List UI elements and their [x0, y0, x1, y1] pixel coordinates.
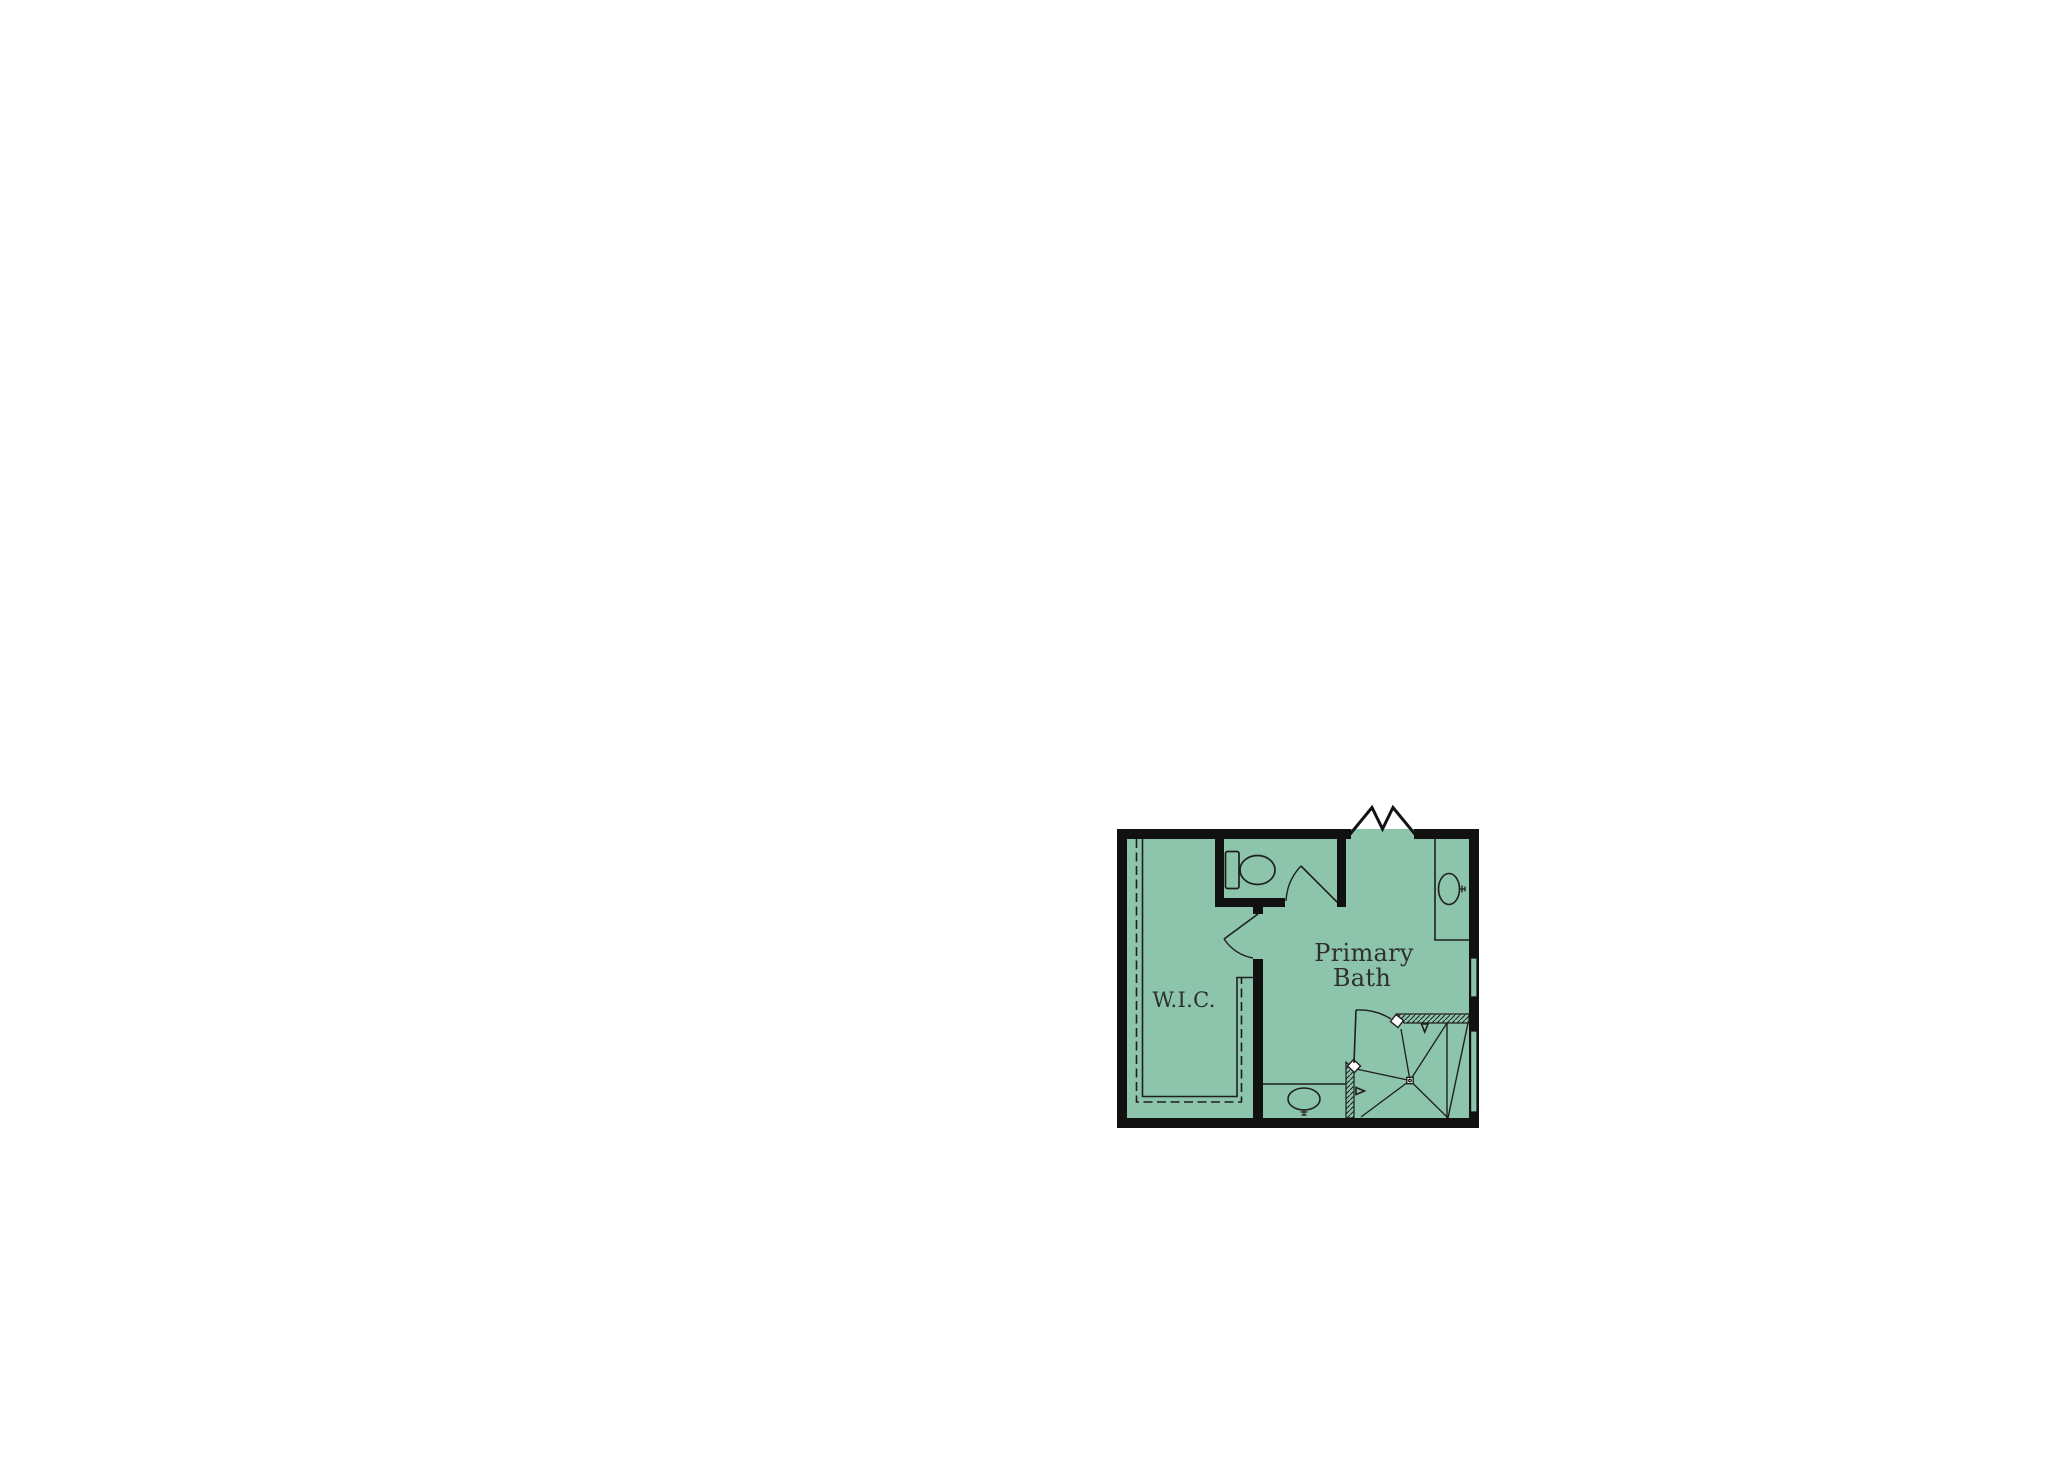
toilet-room-wall-right [1337, 839, 1346, 907]
wic-divider-stub [1253, 906, 1263, 914]
floor-plan: Primary Bath W.I.C. [1100, 795, 1490, 1140]
wall-bottom [1117, 1118, 1479, 1128]
primary-bath-label-line1: Primary [1314, 939, 1414, 967]
wic-divider-wall [1253, 959, 1263, 1118]
shower-wall-top [1397, 1014, 1469, 1023]
sink-icon [1288, 1088, 1320, 1110]
window-lower [1471, 1031, 1477, 1112]
page-canvas: Primary Bath W.I.C. [0, 0, 2069, 1483]
primary-bath-label-line2: Bath [1333, 964, 1391, 992]
floor-area [1127, 829, 1469, 1118]
wic-label: W.I.C. [1152, 988, 1215, 1012]
wall-left [1117, 829, 1127, 1128]
sink-icon [1439, 874, 1460, 905]
shower-drain-icon [1407, 1077, 1413, 1083]
toilet-room-wall-bottom [1215, 898, 1285, 907]
windows [1471, 958, 1477, 1112]
window-upper [1471, 958, 1477, 997]
toilet-room-wall-left [1215, 839, 1224, 907]
wall-top-left-segment [1117, 829, 1351, 839]
